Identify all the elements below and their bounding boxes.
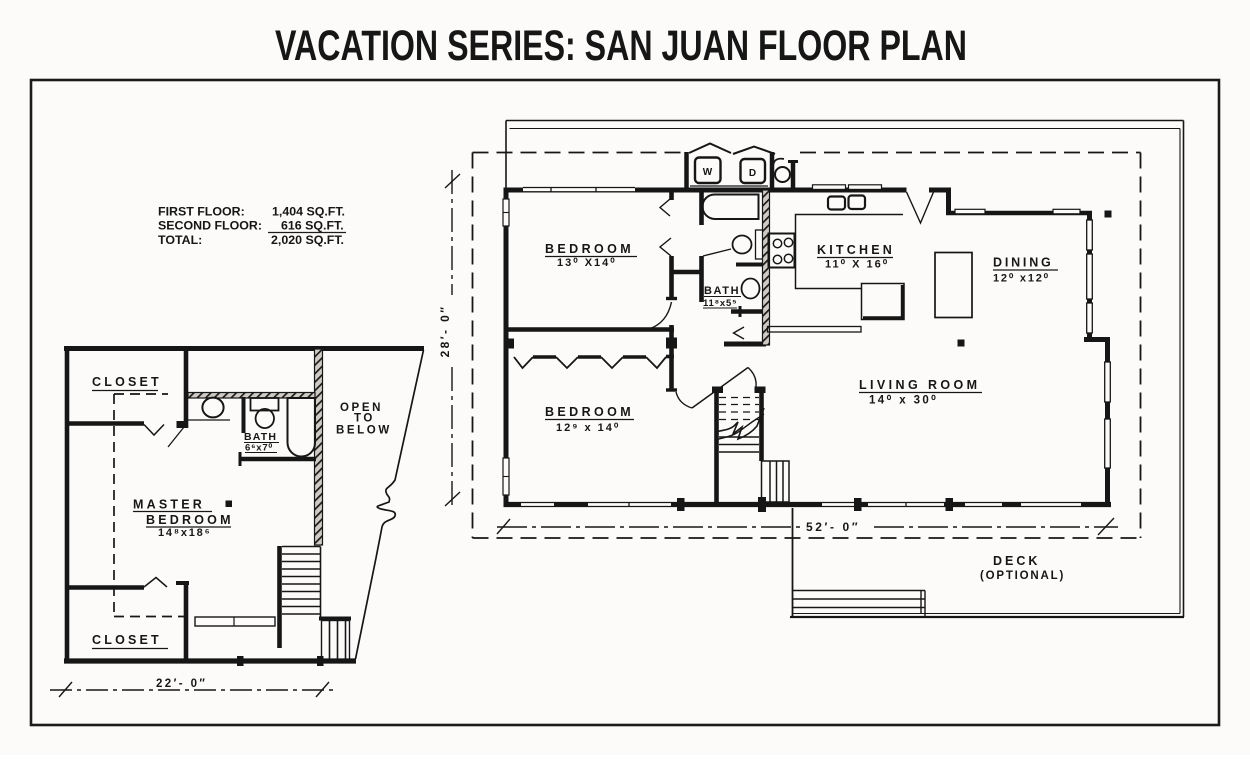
- svg-text:14⁸x18⁶: 14⁸x18⁶: [158, 527, 211, 539]
- svg-text:BEDROOM: BEDROOM: [146, 513, 234, 527]
- svg-text:12⁰ x12⁰: 12⁰ x12⁰: [993, 273, 1050, 285]
- svg-text:TOTAL:: TOTAL:: [158, 233, 202, 247]
- svg-text:FIRST FLOOR:: FIRST FLOOR:: [158, 205, 245, 219]
- svg-text:KITCHEN: KITCHEN: [817, 243, 895, 257]
- svg-text:(OPTIONAL): (OPTIONAL): [980, 570, 1065, 582]
- svg-text:616 SQ.FT.: 616 SQ.FT.: [281, 219, 344, 233]
- svg-text:TO: TO: [354, 413, 375, 425]
- svg-text:6⁶x7⁰: 6⁶x7⁰: [245, 443, 273, 454]
- svg-text:BATH: BATH: [244, 431, 277, 443]
- svg-text:BEDROOM: BEDROOM: [545, 405, 634, 419]
- svg-text:LIVING ROOM: LIVING ROOM: [859, 378, 980, 392]
- svg-text:SECOND FLOOR:: SECOND FLOOR:: [158, 219, 262, 233]
- svg-text:VACATION SERIES: SAN JUAN FLOO: VACATION SERIES: SAN JUAN FLOOR PLAN: [275, 22, 967, 70]
- svg-text:11⁰ X 16⁰: 11⁰ X 16⁰: [825, 259, 889, 271]
- svg-text:MASTER: MASTER: [133, 498, 205, 512]
- svg-text:DINING: DINING: [993, 256, 1054, 270]
- svg-text:12⁹ x 14⁰: 12⁹ x 14⁰: [556, 422, 620, 434]
- svg-text:BELOW: BELOW: [336, 425, 392, 437]
- svg-text:11⁸x5⁵: 11⁸x5⁵: [703, 298, 737, 309]
- svg-text:13⁰ X14⁰: 13⁰ X14⁰: [557, 257, 617, 269]
- svg-text:CLOSET: CLOSET: [92, 375, 162, 389]
- svg-text:W: W: [703, 167, 713, 178]
- svg-text:D: D: [749, 168, 756, 179]
- svg-text:CLOSET: CLOSET: [92, 633, 162, 647]
- svg-text:BEDROOM: BEDROOM: [545, 242, 634, 256]
- svg-text:DECK: DECK: [993, 554, 1040, 568]
- svg-text:14⁰ x 30⁰: 14⁰ x 30⁰: [869, 394, 938, 407]
- svg-text:52′- 0″: 52′- 0″: [806, 520, 860, 534]
- svg-text:22′- 0″: 22′- 0″: [156, 678, 207, 690]
- svg-text:2,020 SQ.FT.: 2,020 SQ.FT.: [271, 233, 344, 247]
- svg-text:BATH: BATH: [704, 285, 740, 297]
- svg-text:28′- 0″: 28′- 0″: [438, 305, 452, 358]
- svg-text:1,404 SQ.FT.: 1,404 SQ.FT.: [272, 205, 345, 219]
